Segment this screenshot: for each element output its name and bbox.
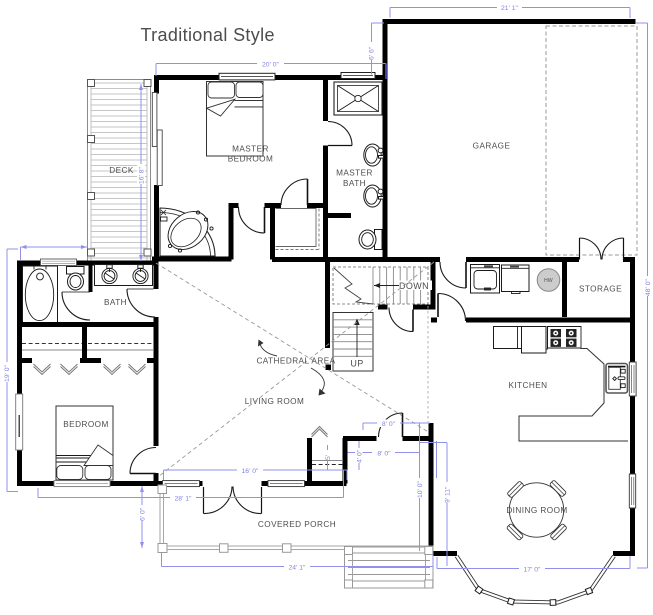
svg-text:GARAGE: GARAGE (473, 142, 511, 151)
svg-text:KITCHEN: KITCHEN (508, 381, 547, 390)
svg-text:48' 0": 48' 0" (645, 278, 652, 296)
svg-text:24' 1": 24' 1" (289, 564, 307, 571)
svg-text:BATH: BATH (343, 179, 366, 188)
svg-text:6' 6": 6' 6" (369, 46, 376, 60)
svg-text:8' 0": 8' 0" (382, 421, 396, 428)
svg-text:6' 0": 6' 0" (140, 507, 147, 521)
svg-text:5': 5' (325, 455, 332, 460)
svg-text:21' 1": 21' 1" (501, 5, 519, 12)
svg-text:10' 0": 10' 0" (417, 480, 424, 498)
svg-text:STORAGE: STORAGE (579, 285, 622, 294)
svg-text:HW: HW (544, 278, 553, 284)
svg-text:MASTER: MASTER (336, 169, 373, 178)
svg-text:MASTER: MASTER (232, 144, 269, 153)
svg-text:16' 0": 16' 0" (242, 468, 260, 475)
svg-text:CATHEDRAL AREA: CATHEDRAL AREA (256, 357, 335, 366)
svg-text:DINING ROOM: DINING ROOM (506, 506, 567, 515)
svg-text:UP: UP (350, 358, 363, 368)
svg-text:28' 1": 28' 1" (175, 495, 193, 502)
svg-text:4' 0": 4' 0" (357, 449, 364, 463)
svg-text:DECK: DECK (109, 166, 134, 175)
svg-text:20' 0": 20' 0" (262, 61, 280, 68)
svg-text:COVERED PORCH: COVERED PORCH (258, 520, 336, 529)
svg-text:BATH: BATH (104, 298, 127, 307)
svg-text:16' 8": 16' 8" (139, 166, 146, 184)
svg-text:BEDROOM: BEDROOM (63, 420, 108, 429)
svg-text:19' 0": 19' 0" (4, 364, 11, 382)
svg-text:BEDROOM: BEDROOM (228, 155, 273, 164)
svg-text:Traditional Style: Traditional Style (141, 25, 275, 45)
svg-text:8' 0": 8' 0" (377, 451, 391, 458)
svg-text:17' 0": 17' 0" (524, 566, 542, 573)
svg-text:9' 11": 9' 11" (445, 486, 452, 503)
svg-text:LIVING ROOM: LIVING ROOM (245, 397, 305, 406)
